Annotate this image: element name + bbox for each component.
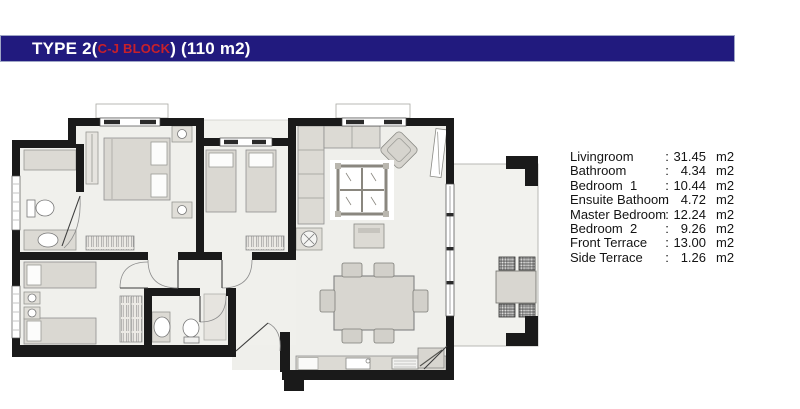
title-block-label: C-J BLOCK: [98, 41, 171, 56]
pillow: [209, 153, 233, 167]
room-area-value: 1.26: [671, 251, 706, 265]
stove: [392, 358, 418, 369]
room-label: Bedroom 1: [570, 179, 663, 193]
room-label: Bedroom 2: [570, 222, 663, 236]
area-unit: m2: [706, 193, 734, 207]
sink-icon: [38, 233, 58, 247]
room-area-value: 31.45: [671, 150, 706, 164]
terrace-chair: [499, 257, 515, 270]
floor-plan-drawing: [0, 80, 560, 400]
room-area-value: 4.34: [671, 164, 706, 178]
room-area-value: 10.44: [671, 179, 706, 193]
dining-table: [334, 276, 414, 330]
legend-row: Master Bedroom : 12.24 m2: [570, 208, 734, 222]
legend-row: Bedroom 2 : 9.26 m2: [570, 222, 734, 236]
toilet-tank: [27, 200, 35, 217]
window-sills: [96, 104, 410, 118]
room-label: Ensuite Bathoom: [570, 193, 663, 207]
pillow: [27, 265, 41, 285]
area-unit: m2: [706, 164, 734, 178]
room-label: Side Terrace: [570, 251, 663, 265]
room-label: Livingroom: [570, 150, 663, 164]
pillow: [151, 174, 167, 197]
legend-row: Bathroom : 4.34 m2: [570, 164, 734, 178]
title-bar: TYPE 2(C-J BLOCK) (110 m2): [0, 35, 735, 62]
pillow: [249, 153, 273, 167]
toilet-icon: [36, 200, 54, 216]
room-label: Front Terrace: [570, 236, 663, 250]
toilet-tank: [184, 337, 199, 343]
terrace-chair: [499, 304, 515, 317]
terrace-table: [496, 271, 536, 303]
legend-row: Side Terrace : 1.26 m2: [570, 251, 734, 265]
legend-row: Livingroom : 31.45 m2: [570, 150, 734, 164]
area-unit: m2: [706, 222, 734, 236]
room-label: Master Bedroom: [570, 208, 663, 222]
title-prefix: TYPE 2(: [32, 39, 98, 59]
area-unit: m2: [706, 150, 734, 164]
room-area-value: 12.24: [671, 208, 706, 222]
room-legend: Livingroom : 31.45 m2 Bathroom : 4.34 m2…: [570, 150, 734, 265]
title-suffix: ) (110 m2): [170, 39, 250, 59]
legend-row: Bedroom 1 : 10.44 m2: [570, 179, 734, 193]
tv-unit: [354, 224, 384, 248]
floor-plan: [0, 80, 560, 400]
pillow: [151, 142, 167, 165]
closet: [246, 236, 284, 250]
legend-row: Front Terrace : 13.00 m2: [570, 236, 734, 250]
room-area-value: 13.00: [671, 236, 706, 250]
legend-row: Ensuite Bathoom : 4.72 m2: [570, 193, 734, 207]
toilet-icon: [183, 319, 199, 337]
area-unit: m2: [706, 179, 734, 193]
dresser: [86, 236, 134, 250]
terrace-chair: [519, 257, 535, 270]
sofa: [298, 126, 324, 224]
floor-plan-page: TYPE 2(C-J BLOCK) (110 m2): [0, 0, 800, 409]
room-label: Bathroom: [570, 164, 663, 178]
sink-icon: [154, 317, 170, 337]
pillow: [27, 321, 41, 341]
area-unit: m2: [706, 236, 734, 250]
room-area-value: 9.26: [671, 222, 706, 236]
area-unit: m2: [706, 208, 734, 222]
area-unit: m2: [706, 251, 734, 265]
room-area-value: 4.72: [671, 193, 706, 207]
terrace-chair: [519, 304, 535, 317]
shower: [204, 294, 226, 340]
